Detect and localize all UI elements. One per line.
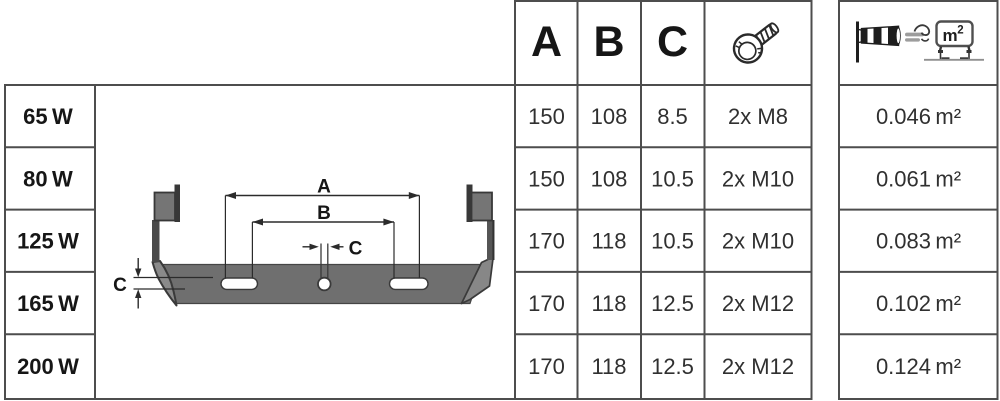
svg-text:80 W: 80 W — [23, 166, 73, 191]
svg-text:10.5: 10.5 — [651, 166, 694, 191]
svg-text:8.5: 8.5 — [657, 104, 688, 129]
svg-text:65 W: 65 W — [23, 104, 73, 129]
svg-text:C: C — [657, 18, 688, 66]
svg-text:2x M12: 2x M12 — [722, 291, 794, 316]
svg-text:2x M12: 2x M12 — [722, 354, 794, 379]
svg-text:C: C — [113, 275, 127, 296]
svg-text:B: B — [317, 203, 331, 224]
svg-text:170: 170 — [528, 354, 565, 379]
svg-text:0.124 m²: 0.124 m² — [876, 354, 961, 379]
svg-text:2x M8: 2x M8 — [728, 104, 788, 129]
svg-text:2x M10: 2x M10 — [722, 229, 794, 254]
svg-text:m: m — [942, 26, 957, 45]
svg-text:A: A — [531, 18, 562, 66]
svg-text:12.5: 12.5 — [651, 291, 694, 316]
svg-text:2x M10: 2x M10 — [722, 166, 794, 191]
svg-text:125 W: 125 W — [17, 229, 79, 254]
svg-text:0.102 m²: 0.102 m² — [876, 291, 961, 316]
svg-text:10.5: 10.5 — [651, 229, 694, 254]
svg-text:170: 170 — [528, 291, 565, 316]
svg-text:118: 118 — [591, 291, 626, 316]
svg-text:12.5: 12.5 — [651, 354, 694, 379]
svg-text:A: A — [317, 176, 331, 197]
svg-text:108: 108 — [591, 104, 628, 129]
svg-text:170: 170 — [528, 229, 565, 254]
svg-text:0.046 m²: 0.046 m² — [876, 104, 961, 129]
svg-text:150: 150 — [528, 104, 565, 129]
svg-text:0.083 m²: 0.083 m² — [876, 229, 961, 254]
svg-text:0.061 m²: 0.061 m² — [876, 166, 961, 191]
svg-text:118: 118 — [591, 354, 626, 379]
svg-text:108: 108 — [591, 166, 628, 191]
svg-text:B: B — [593, 18, 624, 66]
svg-text:118: 118 — [591, 229, 626, 254]
svg-text:200 W: 200 W — [17, 354, 79, 379]
svg-text:2: 2 — [957, 25, 963, 37]
svg-text:150: 150 — [528, 166, 565, 191]
svg-text:165 W: 165 W — [17, 291, 79, 316]
svg-text:C: C — [349, 239, 363, 260]
